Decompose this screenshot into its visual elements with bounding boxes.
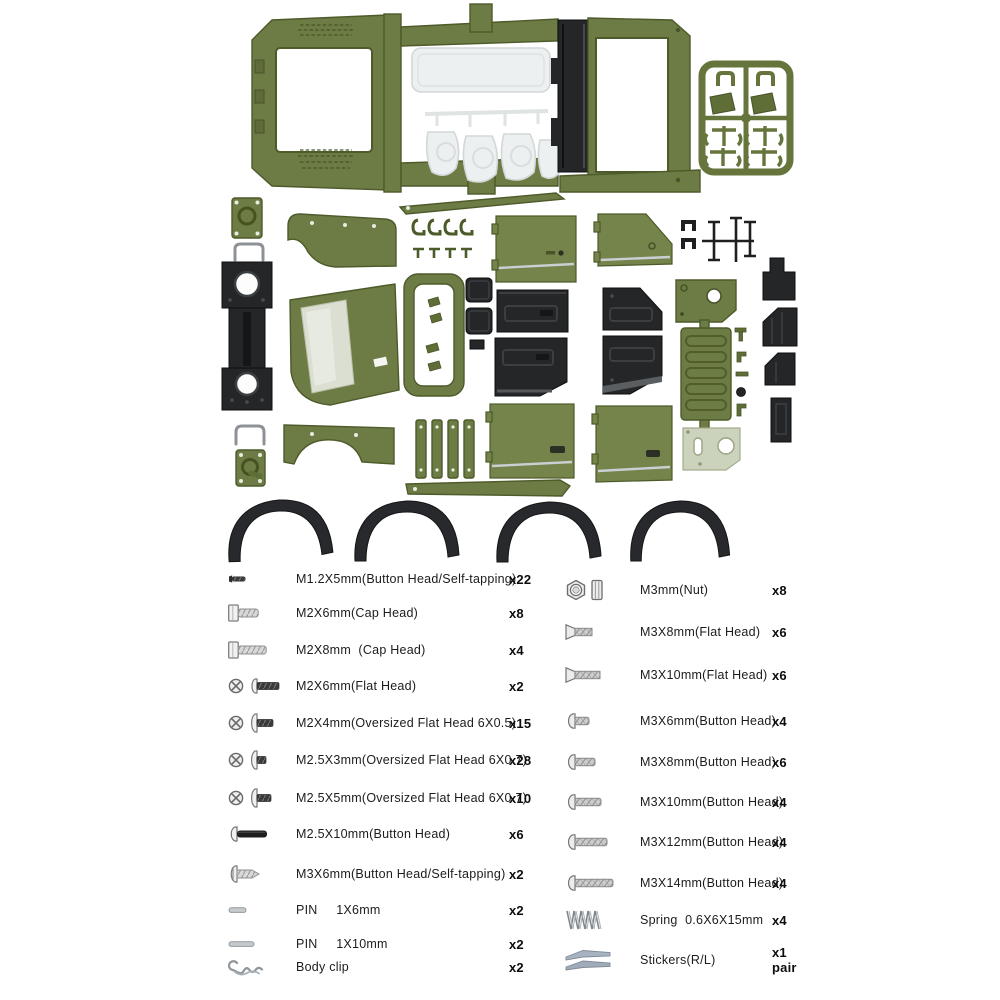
black-slider-rail (222, 262, 272, 410)
part-label: M2X6mm(Cap Head) (296, 606, 418, 620)
part-qty: x22 (509, 572, 531, 587)
button-head-screw-icon (565, 875, 640, 891)
black-mirror-boxes (466, 278, 492, 349)
part-label: M3X6mm(Button Head/Self-tapping) (296, 867, 505, 881)
part-label: Stickers(R/L) (640, 953, 715, 967)
green-door-rear-lower (592, 406, 672, 482)
strip-hole (406, 206, 410, 210)
mount-plate-top (232, 198, 262, 238)
hardware-row: M3X12mm(Button Head) x4 (565, 829, 815, 855)
part-label: M2X4mm(Oversized Flat Head 6X0.5) (296, 716, 516, 730)
u-wire-bottom (236, 426, 264, 444)
part-qty: x1 pair (772, 945, 815, 975)
part-label: M3X10mm(Flat Head) (640, 668, 767, 682)
pin-icon (228, 906, 296, 914)
mount-plate-bottom (236, 450, 265, 486)
part-label: Body clip (296, 960, 349, 974)
part-qty: x28 (509, 753, 531, 768)
door-hinge-hooks (413, 220, 472, 258)
part-label: M2X6mm(Flat Head) (296, 679, 416, 693)
hardware-row: M2X4mm(Oversized Flat Head 6X0.5) x15 (228, 710, 546, 736)
small-black-brackets (763, 258, 797, 442)
phillips-oversized-flat-head-screw-icon (228, 750, 296, 770)
part-qty: x2 (509, 960, 524, 975)
black-door-front-mid (497, 290, 568, 332)
part-label: PIN 1X6mm (296, 903, 381, 917)
part-qty: x2 (509, 679, 524, 694)
hardware-row: Spring 0.6X6X15mm x4 (565, 907, 815, 933)
black-door-rear-mid (603, 288, 662, 330)
part-qty: x6 (509, 827, 524, 842)
pin-icon (228, 940, 296, 948)
spring-icon (565, 908, 640, 932)
rocker-strip-bottom (406, 480, 570, 496)
hardware-row: Body clip x2 (228, 954, 546, 980)
rear-fender (284, 425, 394, 464)
rocker-sill-strips (416, 420, 474, 478)
pale-mount-bracket (683, 428, 740, 470)
part-qty: x4 (772, 714, 787, 729)
hardware-row: M3X6mm(Button Head/Self-tapping) x2 (228, 861, 546, 887)
green-door-front-lower (486, 404, 574, 478)
hardware-row: M2.5X10mm(Button Head) x6 (228, 821, 546, 847)
phillips-oversized-flat-head-screw-icon (228, 713, 296, 733)
part-label: M3X6mm(Button Head) (640, 714, 776, 728)
green-bracket-plate (676, 280, 736, 322)
part-label: M3X12mm(Button Head) (640, 835, 783, 849)
part-qty: x4 (509, 643, 524, 658)
nut-icon (565, 579, 640, 601)
button-head-screw-icon (565, 754, 640, 770)
green-door-front-upper (492, 216, 576, 282)
button-head-screw-icon (565, 794, 640, 810)
body-shell-frame (252, 4, 700, 194)
part-label: PIN 1X10mm (296, 937, 388, 951)
part-qty: x15 (509, 716, 531, 731)
part-label: M3X8mm(Flat Head) (640, 625, 760, 639)
black-clip-sprue (681, 218, 756, 262)
hardware-row: M3X8mm(Button Head) x6 (565, 749, 815, 775)
clear-window-parts (412, 48, 562, 182)
cap-head-screw-icon (228, 604, 296, 622)
body-clip-icon (228, 957, 296, 977)
hardware-row: M3X6mm(Button Head) x4 (565, 708, 815, 734)
part-qty: x10 (509, 791, 531, 806)
part-qty: x2 (509, 903, 524, 918)
button-head-screw-icon (565, 834, 640, 850)
phillips-oversized-flat-head-screw-icon (228, 788, 296, 808)
part-qty: x2 (509, 867, 524, 882)
flat-head-screw-icon (565, 624, 640, 640)
hardware-row: M3X14mm(Button Head) x4 (565, 870, 815, 896)
stickers-icon (565, 948, 640, 972)
hardware-row: Stickers(R/L) x1 pair (565, 947, 815, 973)
hardware-row: PIN 1X6mm x2 (228, 897, 546, 923)
part-label: M3mm(Nut) (640, 583, 708, 597)
hardware-row: M3X8mm(Flat Head) x6 (565, 619, 815, 645)
rocker-strip-top (400, 193, 564, 214)
window-frame-ring (404, 274, 464, 396)
part-label: Spring 0.6X6X15mm (640, 913, 763, 927)
hardware-row: M2.5X3mm(Oversized Flat Head 6X0.7) x28 (228, 747, 546, 773)
cap-head-screw-long-icon (228, 641, 296, 659)
part-label: M2.5X5mm(Oversized Flat Head 6X0.7) (296, 791, 527, 805)
hardware-row: M1.2X5mm(Button Head/Self-tapping) x22 (228, 566, 546, 592)
green-door-rear-upper (594, 214, 672, 266)
part-label: M2.5X3mm(Oversized Flat Head 6X0.7) (296, 753, 527, 767)
part-label: M1.2X5mm(Button Head/Self-tapping) (296, 572, 516, 586)
part-label: M3X8mm(Button Head) (640, 755, 776, 769)
black-door-rear-low (603, 336, 662, 394)
part-label: M2.5X10mm(Button Head) (296, 827, 450, 841)
black-door-front-low (495, 338, 567, 396)
windshield-frame (290, 284, 399, 405)
part-label: M3X10mm(Button Head) (640, 795, 783, 809)
part-qty: x4 (772, 876, 787, 891)
part-qty: x8 (772, 583, 787, 598)
tailgate-small-parts (735, 328, 748, 416)
hardware-row: M2X6mm(Cap Head) x8 (228, 600, 546, 626)
hardware-row: M3X10mm(Flat Head) x6 (565, 662, 815, 688)
u-wire-top (235, 244, 263, 260)
hardware-row: M2X8mm (Cap Head) x4 (228, 637, 546, 663)
self-tapping-button-screw-icon (228, 865, 296, 883)
part-label: M2X8mm (Cap Head) (296, 643, 426, 657)
product-parts-image: M1.2X5mm(Button Head/Self-tapping) x22 M… (0, 0, 1000, 1000)
tailgate (681, 320, 748, 428)
parts-photo-illustration (0, 0, 1000, 565)
front-fender (288, 214, 396, 267)
part-qty: x4 (772, 835, 787, 850)
button-head-screw-icon (565, 713, 640, 729)
part-qty: x6 (772, 755, 787, 770)
strip-hole-2 (413, 487, 417, 491)
part-qty: x8 (509, 606, 524, 621)
part-qty: x4 (772, 795, 787, 810)
part-qty: x4 (772, 913, 787, 928)
hardware-row: M2X6mm(Flat Head) x2 (228, 673, 546, 699)
part-qty: x6 (772, 668, 787, 683)
hardware-row: M2.5X5mm(Oversized Flat Head 6X0.7) x10 (228, 785, 546, 811)
button-head-screw-black-icon (228, 826, 296, 842)
hardware-row: M3mm(Nut) x8 (565, 577, 815, 603)
hardware-row: M3X10mm(Button Head) x4 (565, 789, 815, 815)
phillips-flat-head-screw-icon (228, 678, 296, 694)
fender-flares (227, 498, 730, 562)
green-parts-sprue (702, 64, 790, 172)
part-label: M3X14mm(Button Head) (640, 876, 783, 890)
part-qty: x2 (509, 937, 524, 952)
flat-head-screw-icon (565, 667, 640, 683)
button-head-self-tapping-screw-icon (228, 573, 296, 585)
part-qty: x6 (772, 625, 787, 640)
